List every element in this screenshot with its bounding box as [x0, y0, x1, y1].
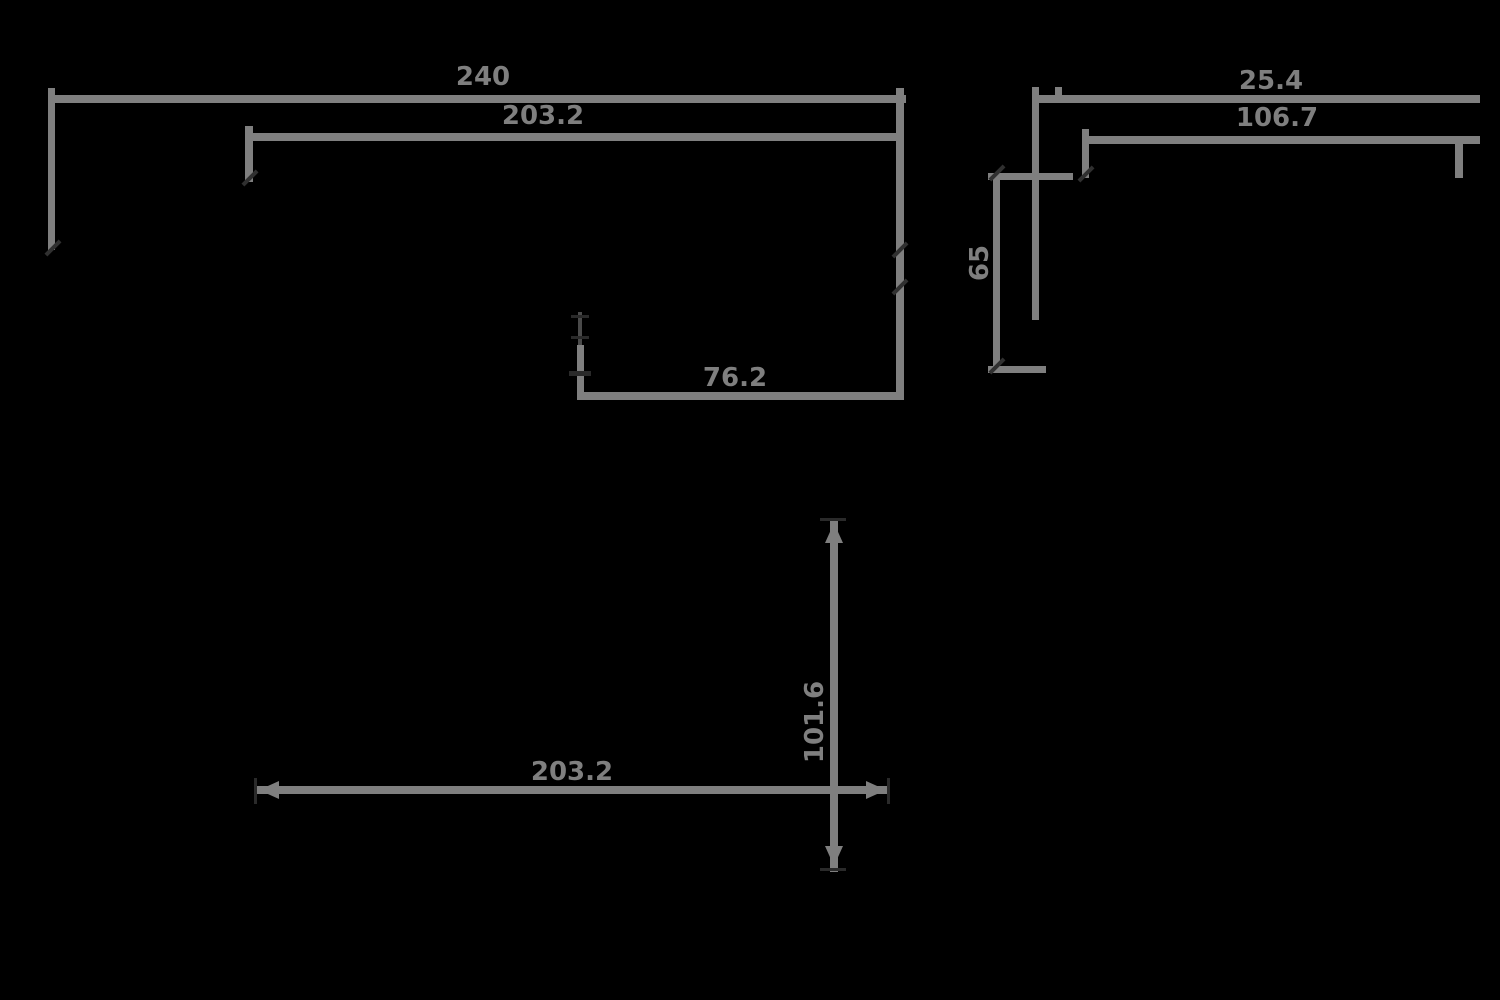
side-upper-stub-tick: [1055, 87, 1062, 95]
plan-horizontal-span-label: 203.2: [522, 759, 622, 785]
plan-horizontal-right-crossbar: [887, 778, 890, 804]
front-bottom-centerline-tick-1: [571, 315, 589, 318]
side-upper-dimension-line: [1032, 95, 1480, 103]
plan-vertical-span-label: 101.6: [802, 672, 828, 772]
side-height-label: 65: [967, 233, 993, 293]
front-bottom-centerline-tick-2: [571, 336, 589, 339]
plan-vertical-top-arrow-icon: [825, 523, 843, 543]
side-lower-dimension-line: [1082, 136, 1480, 144]
side-left-extension-line: [1032, 87, 1039, 320]
front-overall-left-extension-line: [48, 88, 55, 250]
front-inner-dimension-line: [245, 133, 904, 141]
side-lower-right-extension-line: [1455, 140, 1463, 178]
plan-vertical-bottom-crossbar: [820, 868, 846, 871]
front-bottom-left-end-tick: [569, 371, 591, 376]
front-overall-width-label: 240: [433, 64, 533, 90]
plan-horizontal-left-arrow-icon: [259, 781, 279, 799]
plan-vertical-bottom-arrow-icon: [825, 846, 843, 866]
plan-horizontal-dimension-line: [256, 786, 890, 794]
plan-vertical-top-crossbar: [820, 518, 846, 521]
front-inner-width-label: 203.2: [488, 103, 598, 129]
front-overall-dimension-line: [48, 95, 906, 103]
side-height-top-extension-line: [988, 173, 1073, 180]
side-upper-depth-label: 25.4: [1221, 68, 1321, 94]
front-bottom-feature-label: 76.2: [685, 365, 785, 391]
plan-vertical-dimension-line: [830, 520, 838, 872]
front-bottom-dimension-line: [577, 392, 904, 400]
plan-horizontal-right-arrow-icon: [866, 781, 886, 799]
dimension-drawing-canvas: 240 203.2 76.2 25.4 106.7 65 101.6 203.2: [0, 0, 1500, 1000]
side-lower-depth-label: 106.7: [1217, 105, 1337, 131]
plan-horizontal-left-crossbar: [254, 778, 257, 804]
